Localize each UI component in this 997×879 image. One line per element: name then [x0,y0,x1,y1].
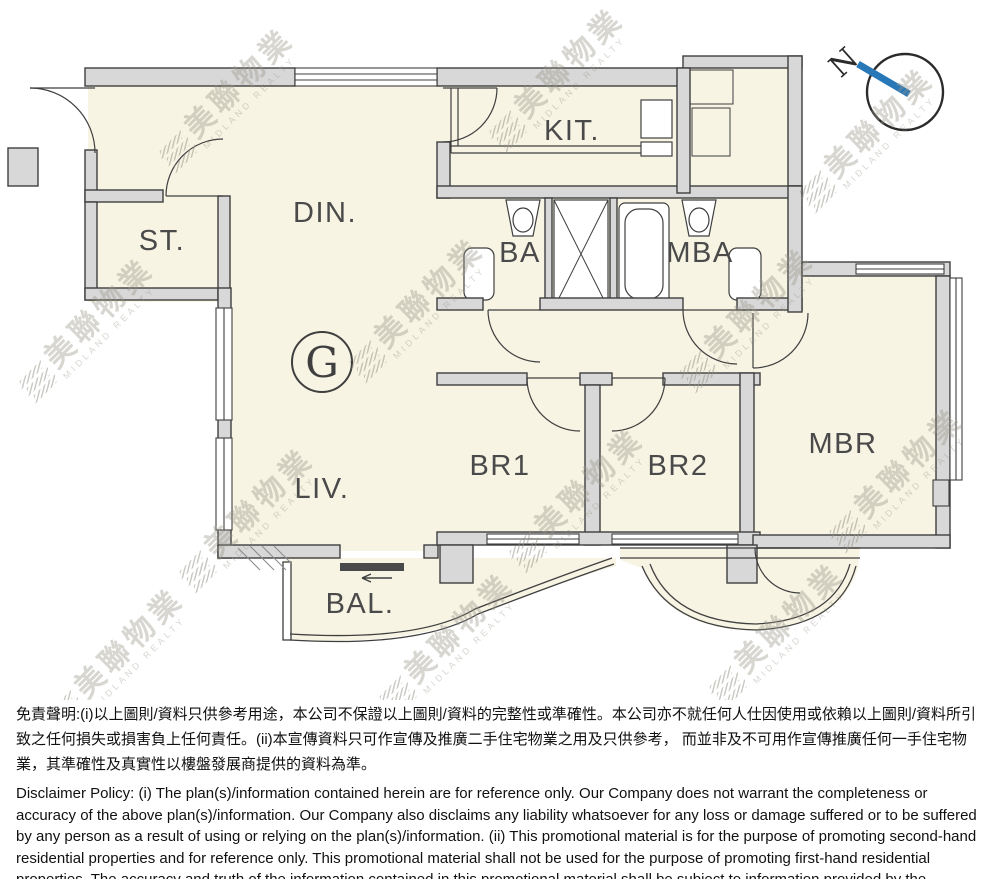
disclaimer-chinese: 免責聲明:(i)以上圖則/資料只供參考用途，本公司不保證以上圖則/資料的完整性或… [16,702,985,777]
disclaimer-block: 免責聲明:(i)以上圖則/資料只供參考用途，本公司不保證以上圖則/資料的完整性或… [16,702,985,879]
room-label-st: ST. [139,225,185,257]
room-label-mbr: MBR [809,428,878,460]
disclaimer-english: Disclaimer Policy: (i) The plan(s)/infor… [16,783,985,879]
room-label-bal: BAL. [326,588,395,620]
north-label: N [823,41,866,85]
window-br1 [487,534,579,544]
room-label-din: DIN. [293,197,357,229]
room-label-br2: BR2 [648,450,709,482]
window-mbr-top [856,264,944,274]
room-label-br1: BR1 [470,450,531,482]
door-entrance [30,88,95,153]
room-label-ba: BA [499,237,541,269]
north-compass: N [823,41,943,130]
floorplan-page: G KIT. DIN. ST. BA MBA BR1 BR2 MBR LIV. … [0,0,997,879]
shower [552,200,610,310]
sliding-door-bar [340,563,404,571]
unit-letter: G [305,338,339,387]
room-label-kit: KIT. [544,115,600,147]
window-liv-left [216,308,232,530]
fridge [641,100,672,156]
unit-badge: G [292,332,352,392]
window-br2 [612,534,738,544]
room-label-liv: LIV. [295,473,350,505]
room-label-mba: MBA [666,237,733,269]
basin-mba [729,248,761,300]
basin-ba [464,248,494,300]
window-top [295,68,437,86]
utility-floor [683,60,795,192]
bathtub [619,203,669,307]
floorplan-drawing: G KIT. DIN. ST. BA MBA BR1 BR2 MBR LIV. … [0,0,997,700]
